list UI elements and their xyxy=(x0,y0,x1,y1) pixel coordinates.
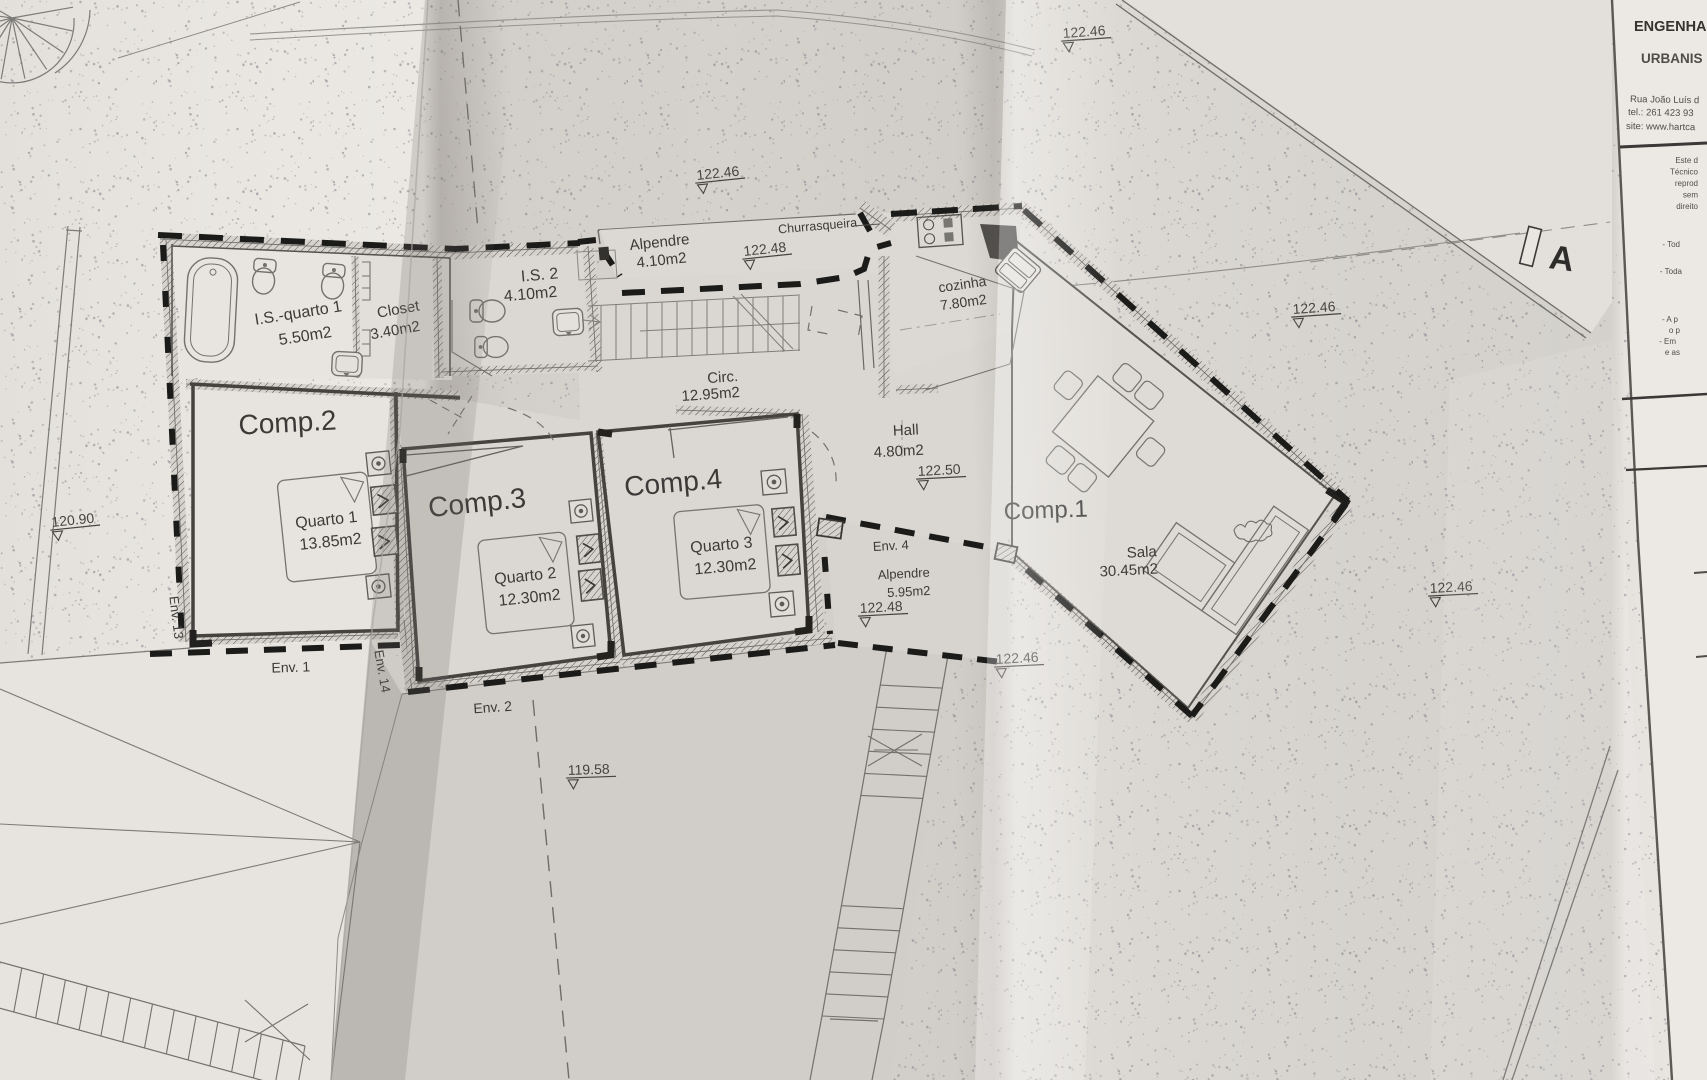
svg-text:- A p: - A p xyxy=(1662,315,1679,324)
svg-text:I.S. 2: I.S. 2 xyxy=(520,265,559,285)
svg-text:ENGENHA: ENGENHA xyxy=(1634,19,1707,35)
svg-text:- Em: - Em xyxy=(1659,337,1676,346)
svg-text:URBANIS: URBANIS xyxy=(1641,51,1703,66)
svg-text:Comp.2: Comp.2 xyxy=(238,404,338,440)
svg-text:e as: e as xyxy=(1665,348,1680,357)
svg-text:Sala: Sala xyxy=(1126,543,1158,562)
svg-text:o p: o p xyxy=(1669,326,1681,335)
svg-text:- Tod: - Tod xyxy=(1662,240,1680,249)
svg-text:Env. 4: Env. 4 xyxy=(872,537,909,554)
svg-text:A: A xyxy=(1547,238,1577,279)
svg-text:119.58: 119.58 xyxy=(568,761,611,778)
svg-text:Alpendre: Alpendre xyxy=(877,565,930,583)
svg-text:sem: sem xyxy=(1683,191,1698,200)
svg-text:4.80m2: 4.80m2 xyxy=(873,442,924,462)
svg-text:Este d: Este d xyxy=(1675,156,1698,165)
svg-text:- Toda: - Toda xyxy=(1660,267,1683,276)
svg-text:tel.: 261 423 93: tel.: 261 423 93 xyxy=(1628,107,1694,119)
svg-text:Hall: Hall xyxy=(892,421,919,439)
svg-text:direito: direito xyxy=(1676,202,1698,211)
svg-text:Rua João Luís d: Rua João Luís d xyxy=(1630,94,1699,106)
svg-text:reprod: reprod xyxy=(1675,179,1698,188)
svg-text:Env. 2: Env. 2 xyxy=(473,698,513,717)
svg-text:122.48: 122.48 xyxy=(859,598,903,616)
svg-text:site: www.hartca: site: www.hartca xyxy=(1626,121,1696,133)
svg-text:30.45m2: 30.45m2 xyxy=(1099,560,1158,580)
svg-text:Técnico: Técnico xyxy=(1670,168,1699,177)
svg-text:Env. 1: Env. 1 xyxy=(271,658,310,675)
